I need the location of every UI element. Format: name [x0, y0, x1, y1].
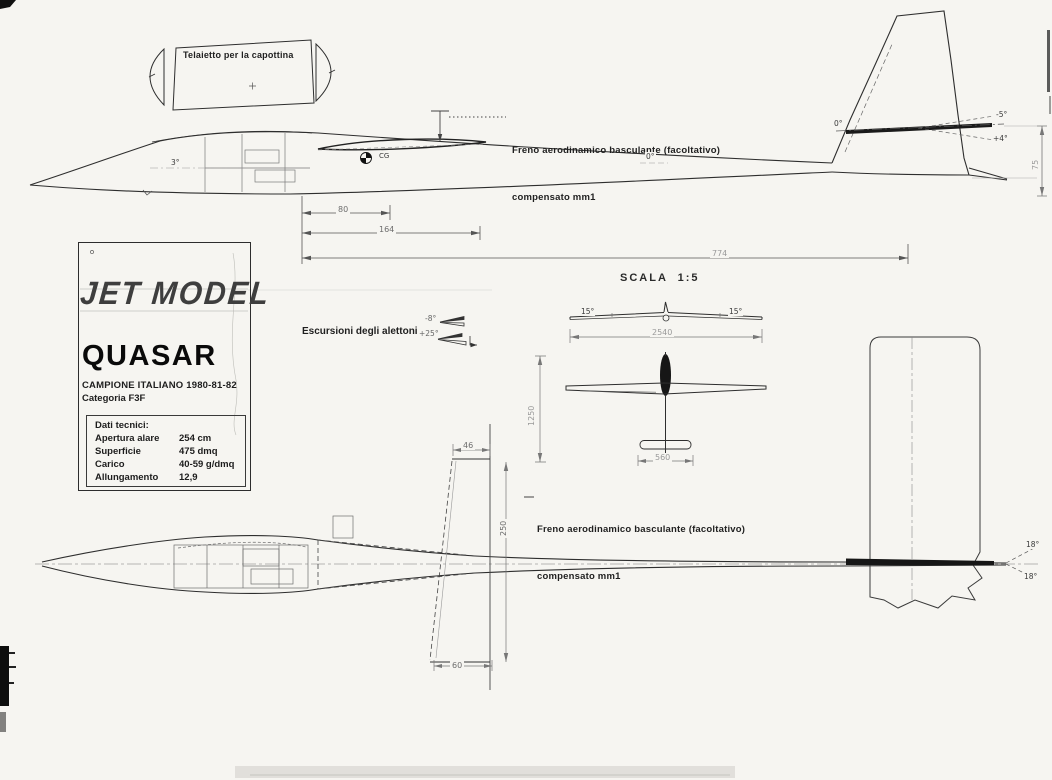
airbrake-label-top: Freno aerodinamico basculante (facoltati…: [512, 109, 720, 221]
elevator-down-angle: +4°: [992, 134, 1009, 143]
cg-label: CG: [378, 152, 390, 160]
spec-row-loading: Carico 40-59 g/dmq: [95, 458, 245, 471]
blueprint-sheet: Telaietto per la capottina Freno aerodin…: [0, 0, 1052, 780]
stab-span-dim-560: 560: [653, 453, 672, 462]
fin-height-dim-250: 250: [499, 519, 508, 538]
cg-symbol: [361, 153, 372, 164]
fin-tip-chord-dim: 60: [450, 661, 464, 670]
spec-value: 40-59 g/dmq: [179, 458, 234, 471]
aileron-deflection-glyph: [438, 317, 477, 348]
fin-root-chord-dim: 46: [461, 441, 475, 450]
fin-template: [430, 424, 490, 690]
aileron-down-value: +25°: [418, 329, 440, 338]
scale-label: SCALA 1:5: [620, 272, 700, 284]
dim-164: 164: [377, 225, 396, 234]
plan-view-wing-root: [318, 540, 475, 589]
airbrake-bottom-line1: Freno aerodinamico basculante (facoltati…: [537, 524, 745, 535]
dihedral-right-angle: 15°: [728, 307, 743, 316]
dihedral-left-angle: 15°: [580, 307, 595, 316]
fin-overlay-patch: [870, 337, 982, 608]
airbrake-top-line2: compensato mm1: [512, 192, 720, 203]
spec-row-wingspan: Apertura alare 254 cm: [95, 432, 245, 445]
plan-view-cockpit: [174, 516, 353, 588]
elevator-up-angle: -5°: [995, 110, 1008, 119]
spec-row-aspect-ratio: Allungamento 12,9: [95, 471, 245, 484]
length-dim-1250: 1250: [527, 404, 536, 428]
brand-logo: JET MODEL: [79, 276, 272, 313]
airbrake-callout-lines: [431, 111, 506, 142]
airbrake-bottom-line2: compensato mm1: [537, 571, 745, 582]
rudder-up-angle: 18°: [1025, 540, 1040, 549]
dim-774: 774: [710, 249, 729, 258]
spec-value: 12,9: [179, 471, 198, 484]
aileron-throws-label: Escursioni degli alettoni: [302, 326, 418, 337]
category-label: Categoria F3F: [82, 393, 145, 404]
rudder-down-angle: 18°: [1023, 572, 1038, 581]
stab-setting-angle: 0°: [833, 119, 844, 128]
airbrake-label-bottom: Freno aerodinamico basculante (facoltati…: [537, 488, 745, 600]
spec-label: Allungamento: [95, 471, 179, 484]
overview-top-view: [566, 352, 766, 460]
spec-label: Apertura alare: [95, 432, 179, 445]
dim-80: 80: [336, 205, 350, 214]
spec-label: Carico: [95, 458, 179, 471]
nose-setting-angle: 3°: [170, 158, 181, 167]
champion-title: CAMPIONE ITALIANO 1980-81-82: [82, 380, 237, 391]
aileron-up-value: -8°: [424, 314, 437, 323]
canopy-frame-label: Telaietto per la capottina: [183, 50, 294, 60]
side-view-wing-airfoil: [318, 139, 486, 150]
wing-setting-angle: 0°: [645, 152, 656, 161]
spec-row-area: Superficie 475 dmq: [95, 445, 245, 458]
span-dim-2540: 2540: [650, 328, 674, 337]
model-name: QUASAR: [82, 340, 217, 373]
spec-label: Superficie: [95, 445, 179, 458]
tech-data-box: Dati tecnici: Apertura alare 254 cm Supe…: [86, 415, 246, 487]
airbrake-top-line1: Freno aerodinamico basculante (facoltati…: [512, 145, 720, 156]
plan-view-stabilator: [846, 546, 1038, 580]
tech-data-title: Dati tecnici:: [95, 419, 245, 432]
side-view-cockpit-internals: [205, 133, 310, 192]
fin-height-dim: 75: [1031, 158, 1040, 172]
spec-value: 475 dmq: [179, 445, 218, 458]
spec-value: 254 cm: [179, 432, 211, 445]
